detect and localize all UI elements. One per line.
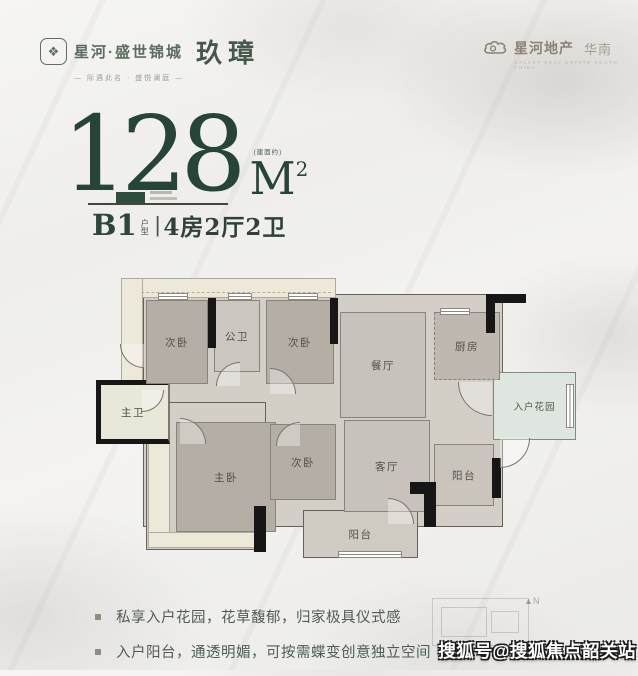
developer-subtext: GALAXY REAL ESTATE SOUTH CHINA (514, 60, 638, 70)
bay-band-top-dash (126, 283, 331, 293)
feature-item: 私享入户花园，花草馥郁，归家极具仪式感 (95, 606, 431, 627)
window-marker (338, 551, 402, 558)
room-dining: 餐厅 (340, 312, 426, 418)
key-map-block (491, 611, 519, 633)
wall-segment (486, 294, 526, 303)
plan-layout: 4房2厅2卫 (163, 208, 286, 242)
window-marker (158, 293, 188, 300)
decor-green-rect (116, 192, 145, 203)
feature-list: 私享入户花园，花草馥郁，归家极具仪式感 入户阳台，通透明媚，可按需蝶变创意独立空… (95, 606, 431, 676)
brand-seal-icon: ❖ (40, 38, 67, 65)
wall-segment (254, 506, 266, 552)
room-bedroom-a: 次卧 (146, 300, 208, 384)
north-label: N (533, 596, 540, 606)
brand-logo-right: 星河地产 华南 GALAXY REAL ESTATE SOUTH CHINA (482, 38, 638, 70)
area-row: 128 (建面约) M2 (62, 112, 308, 197)
feature-item: 入户阳台，通透明媚，可按需蝶变创意独立空间 (95, 641, 431, 662)
headline-block: 128 (建面约) M2 (62, 112, 308, 197)
floor-plan: 次卧 公卫 次卧 餐厅 厨房 入户花园 主卫 主卧 次卧 客厅 阳台 阳台 (88, 272, 580, 564)
feature-text: 入户阳台，通透明媚，可按需蝶变创意独立空间 (116, 641, 431, 662)
plan-type-line: B1 户 型 | 4房2厅2卫 (92, 208, 286, 242)
area-unit: M2 (250, 152, 309, 205)
cloud-icon (482, 40, 508, 57)
room-label: 入户花园 (513, 399, 555, 413)
brand-logo-left: ❖ 星河·盛世锦城 玖璋 — 际遇此名 · 盛悦澜庭 — (40, 33, 260, 83)
wall-segment (208, 298, 216, 348)
room-balcony-side: 阳台 (434, 444, 494, 506)
bay-band-bottom-left-h (148, 532, 266, 548)
watermark: 搜狐号@搜狐焦点韶关站 (438, 638, 636, 663)
room-label: 餐厅 (371, 358, 395, 373)
room-label: 公卫 (225, 329, 249, 344)
window-marker (288, 293, 318, 300)
room-living: 客厅 (344, 420, 430, 512)
window-marker (440, 308, 470, 315)
poster-canvas: { "brand_left": { "title": "星河·盛世锦城", "s… (0, 0, 638, 670)
square-bullet-icon (95, 649, 101, 655)
developer-title: 星河地产 (514, 38, 574, 58)
room-label: 次卧 (291, 455, 315, 470)
square-bullet-icon (95, 614, 101, 620)
developer-region: 华南 (584, 39, 612, 58)
room-label: 厨房 (455, 339, 479, 354)
room-entry-garden: 入户花园 (495, 374, 574, 438)
brand-tagline: — 际遇此名 · 盛悦澜庭 — (74, 73, 260, 83)
feature-text: 私享入户花园，花草馥郁，归家极具仪式感 (116, 606, 401, 627)
area-unit-column: (建面约) M2 (250, 141, 309, 200)
plan-code-caption: 户 型 (141, 220, 149, 237)
brand-title: 星河·盛世锦城 (74, 41, 183, 62)
wall-segment (330, 298, 338, 344)
room-label: 次卧 (165, 335, 189, 350)
room-label: 主卧 (214, 470, 238, 485)
brand-logo-right-row: 星河地产 华南 (482, 38, 638, 58)
room-label: 次卧 (288, 335, 312, 350)
plan-code: B1 (92, 208, 137, 242)
brand-suffix: 玖璋 (196, 33, 260, 70)
plan-caption-bottom: 型 (141, 228, 149, 236)
decor-caption-line-2 (150, 197, 177, 200)
headline-divider (88, 203, 228, 205)
brand-logo-left-row: ❖ 星河·盛世锦城 玖璋 (40, 33, 260, 70)
window-marker (228, 293, 252, 300)
key-map-block (441, 607, 487, 637)
door-arc (500, 438, 530, 468)
window-marker (566, 384, 574, 428)
decor-caption-line-1 (150, 191, 172, 194)
room-label: 阳台 (452, 468, 476, 483)
north-arrow-icon: ▲N (524, 596, 539, 606)
wall-segment (424, 482, 436, 527)
area-value: 128 (62, 112, 240, 197)
area-unit-letter: M (250, 152, 296, 205)
area-superscript: 2 (296, 157, 309, 181)
room-label: 阳台 (349, 527, 373, 542)
wall-segment (486, 303, 495, 333)
plan-separator: | (155, 212, 161, 238)
room-label: 客厅 (375, 459, 399, 474)
